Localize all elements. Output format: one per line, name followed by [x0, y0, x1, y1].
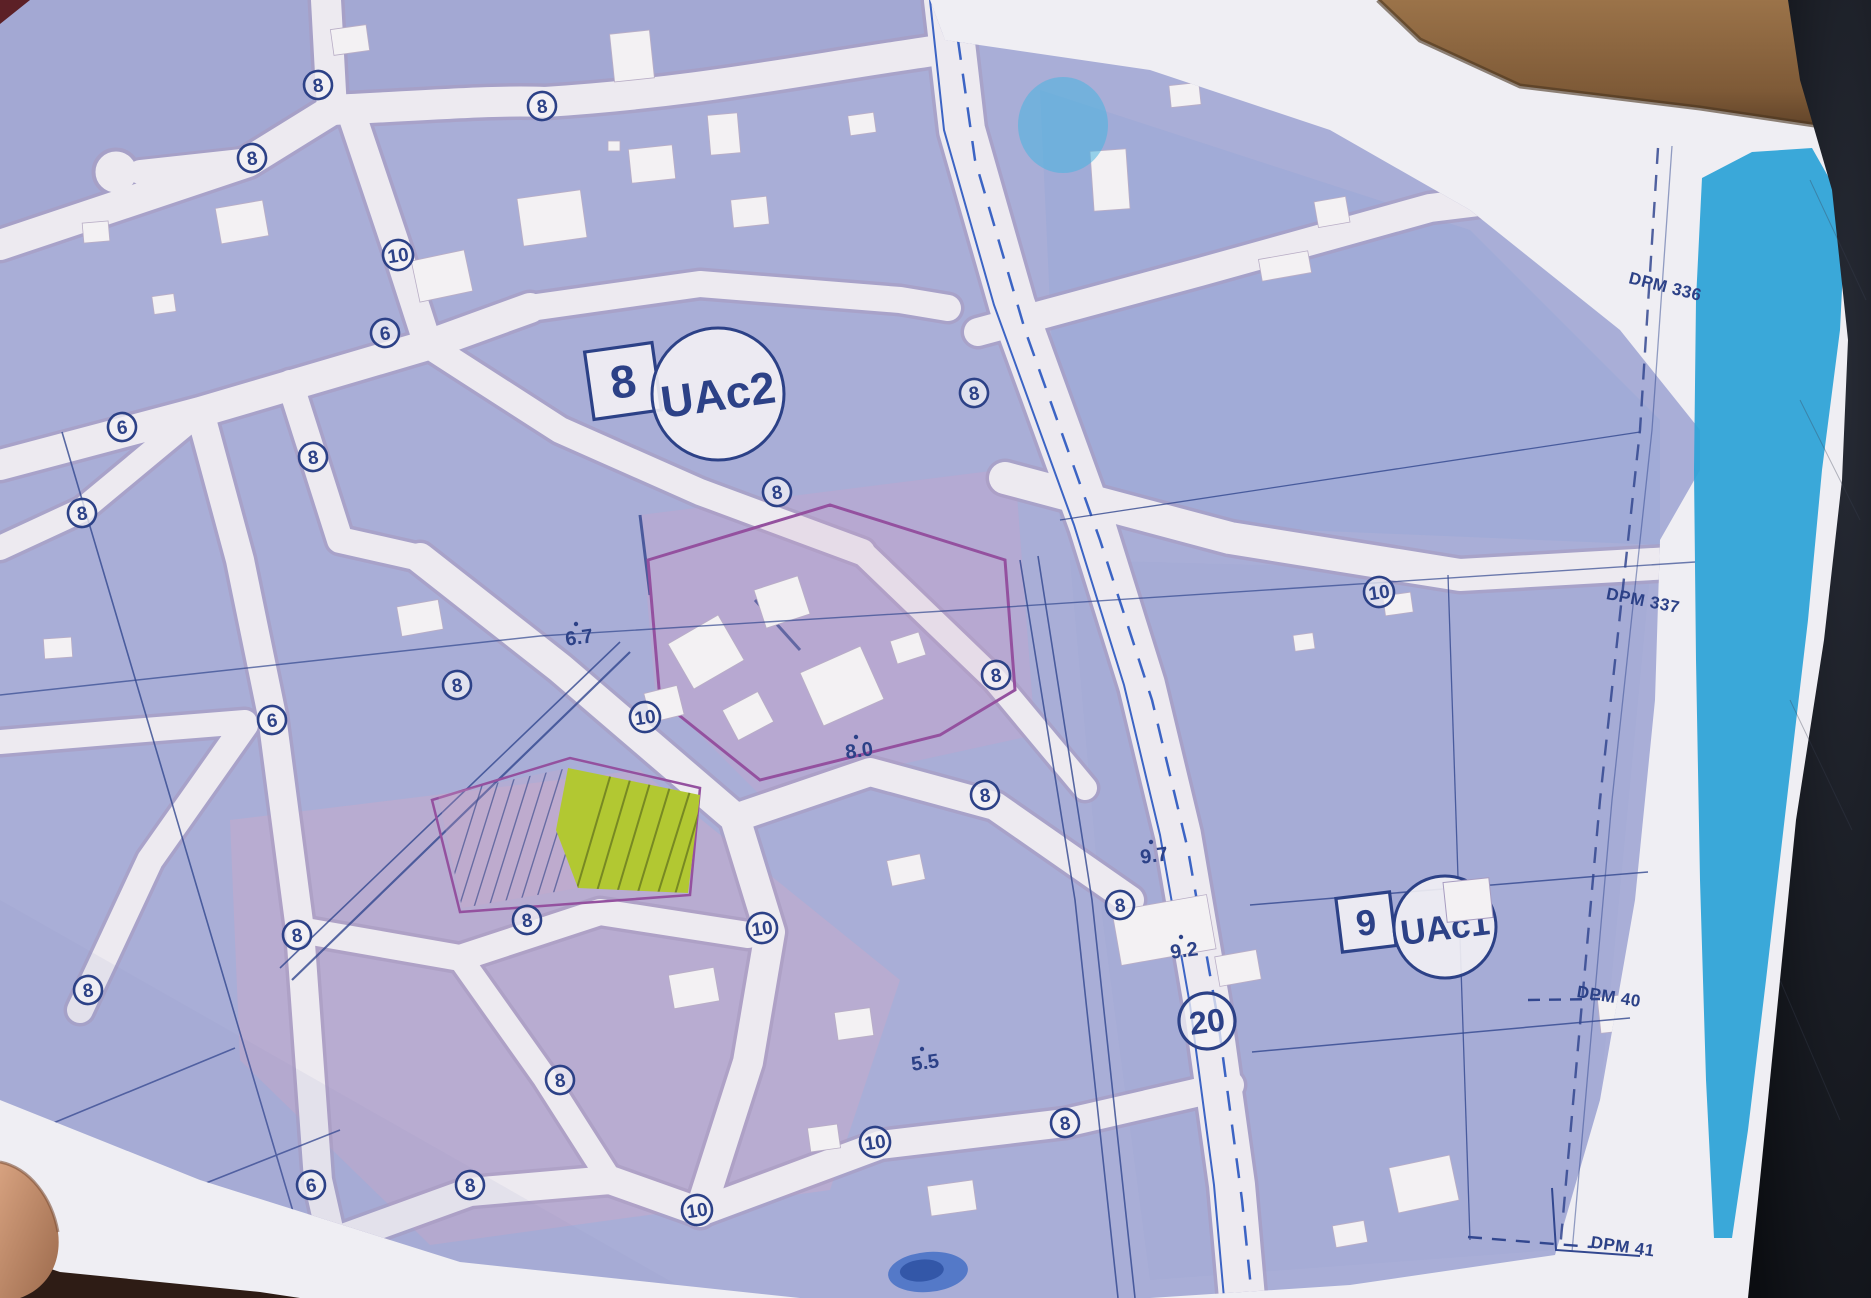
building — [707, 113, 740, 155]
spot-value: 8.0 — [844, 738, 875, 764]
building — [1314, 196, 1350, 227]
marker-value: 10 — [685, 1199, 709, 1223]
spot-value: 9.7 — [1139, 843, 1170, 869]
building-on-label — [1443, 878, 1493, 923]
building — [1090, 149, 1130, 211]
zoning-map-svg: 8UAc29UAc1 88810668888108868108810820868… — [0, 0, 1871, 1298]
building — [834, 1008, 874, 1041]
photo-of-zoning-map: 8UAc29UAc1 88810668888108868108810820868… — [0, 0, 1871, 1298]
marker-value: 10 — [750, 917, 774, 941]
building — [1169, 82, 1201, 107]
building — [43, 637, 72, 659]
building — [1293, 633, 1315, 652]
marker-value: 10 — [633, 706, 657, 730]
spot-value: 6.7 — [564, 625, 595, 651]
spot-dot — [920, 1047, 924, 1051]
building — [517, 190, 587, 246]
building — [807, 1124, 840, 1152]
building — [628, 145, 675, 183]
marker-value: 10 — [1367, 581, 1391, 605]
building — [927, 1180, 977, 1216]
cyan-smudge — [1018, 77, 1108, 173]
building — [608, 141, 620, 151]
building — [848, 112, 877, 135]
marker-value: 10 — [863, 1131, 887, 1155]
spot-dot — [1149, 840, 1153, 844]
spot-dot — [854, 735, 858, 739]
building — [152, 294, 176, 315]
marker-value: 10 — [386, 244, 410, 268]
marker-value: 20 — [1187, 1001, 1227, 1042]
building — [82, 221, 110, 243]
spot-dot — [574, 622, 578, 626]
building — [215, 200, 269, 244]
building — [610, 30, 655, 82]
building — [731, 196, 770, 228]
spot-value: 5.5 — [910, 1050, 941, 1076]
building — [330, 25, 369, 56]
spot-dot — [1179, 935, 1183, 939]
spot-value: 9.2 — [1169, 938, 1200, 964]
